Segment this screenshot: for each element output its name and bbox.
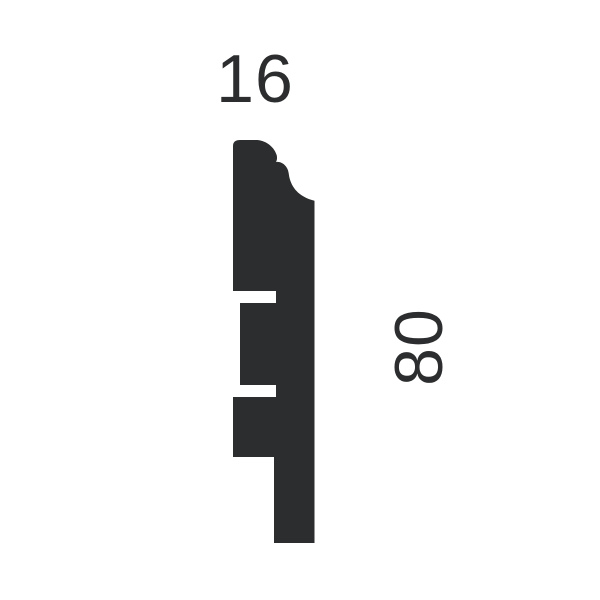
profile-silhouette-svg (0, 0, 600, 600)
width-dimension-label: 16 (216, 45, 294, 113)
height-dimension-label: 80 (385, 308, 453, 386)
profile-silhouette-path (233, 140, 315, 543)
diagram-canvas: 16 80 (0, 0, 600, 600)
